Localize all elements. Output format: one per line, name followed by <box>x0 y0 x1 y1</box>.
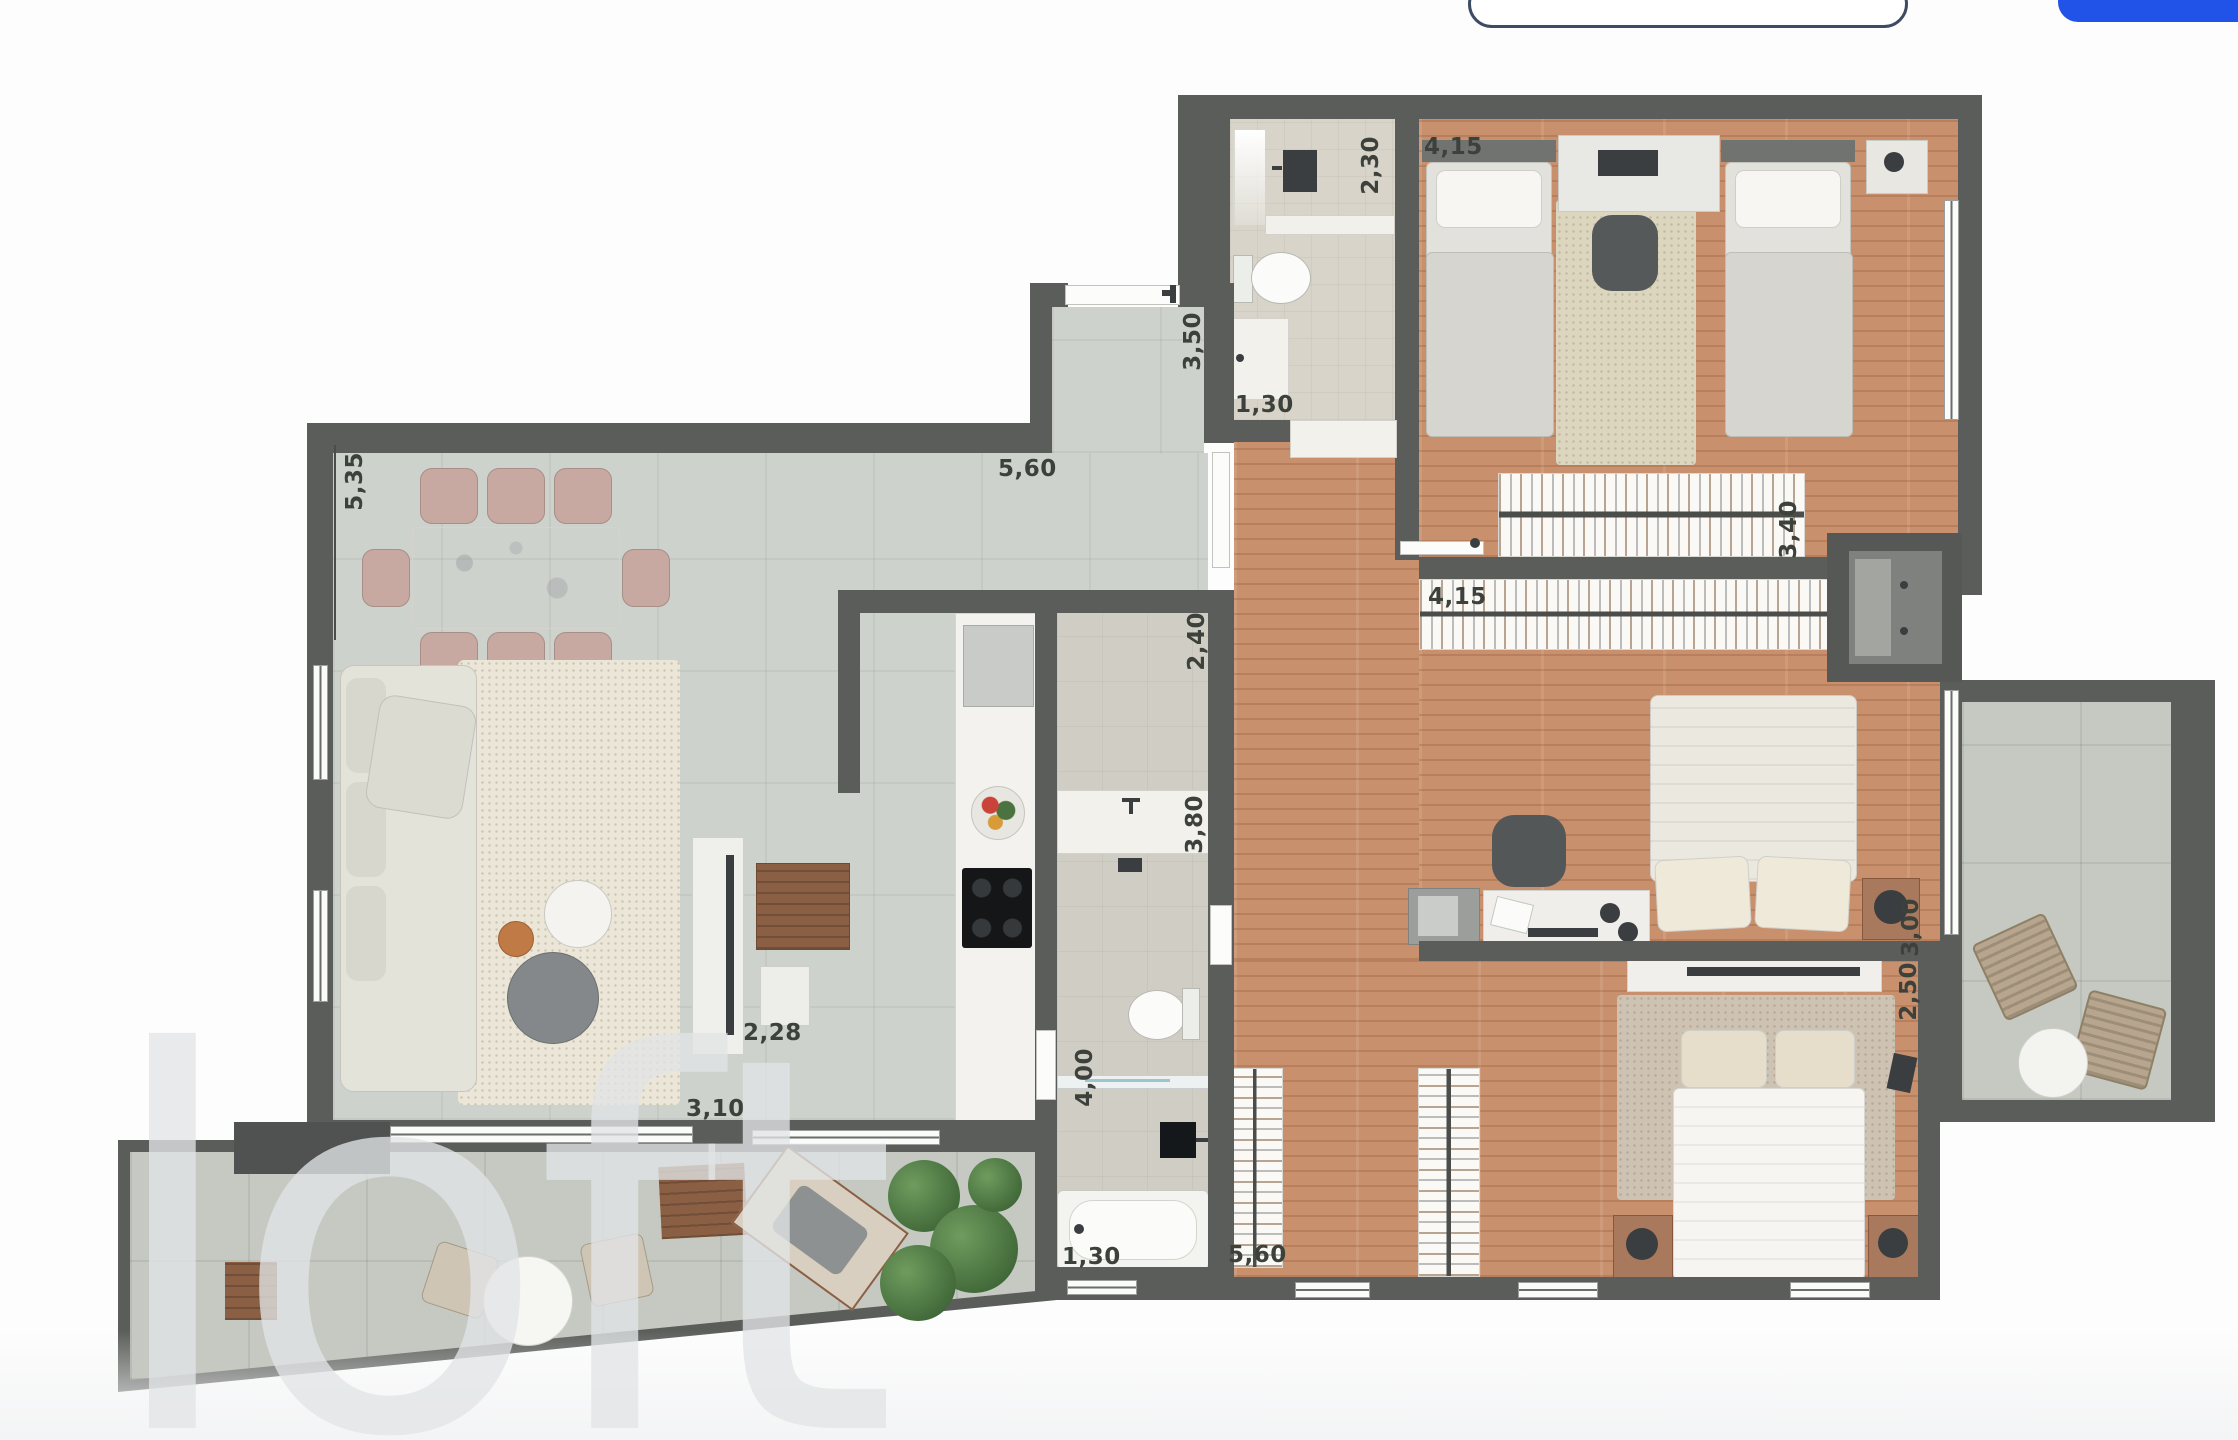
wall-master-bottom <box>1419 941 1940 961</box>
bath1-shower-tray <box>1290 420 1397 458</box>
cooktop <box>962 868 1032 948</box>
bedroom2-lamp <box>1878 1228 1908 1258</box>
bath2-door <box>1210 905 1232 965</box>
bath2-toilet-tank <box>1182 988 1200 1040</box>
master-shelf-inner <box>1418 896 1458 936</box>
wood-sideboard <box>756 863 850 950</box>
dim-label: 3,00 <box>1898 898 1924 957</box>
primary-pill-button[interactable] <box>2058 0 2238 22</box>
master-desk-item <box>1600 903 1620 923</box>
dim-label: 1,30 <box>1235 392 1294 418</box>
master-chair <box>1492 815 1566 887</box>
kids-door-knob <box>1470 538 1480 548</box>
bath1-toilet-tank <box>1233 255 1253 303</box>
dining-chair <box>622 549 670 607</box>
storage-room-door <box>1855 559 1891 656</box>
kids-laptop <box>1598 150 1658 176</box>
twin-bed-duvet <box>1725 252 1853 437</box>
wall-balcony-bottom <box>1940 1100 2215 1122</box>
bath1-faucet <box>1272 166 1282 170</box>
dim-label: 4,15 <box>1428 584 1487 610</box>
bath1-shower-glass <box>1233 130 1265 225</box>
bath2-shelf <box>1160 1122 1196 1158</box>
kitchen-terrace-door <box>1036 1030 1056 1100</box>
bath2-toilet-bowl <box>1128 990 1186 1040</box>
kids-nightstand-lamp <box>1884 152 1904 172</box>
bath2-window <box>1067 1280 1137 1295</box>
master-pillow <box>1654 856 1752 933</box>
corridor-floor <box>1234 442 1419 960</box>
wall-top-exterior <box>1178 95 1982 119</box>
master-desk-item <box>1618 922 1638 942</box>
bedroom2-lamp <box>1626 1228 1658 1260</box>
balcony-table <box>2018 1028 2088 1098</box>
kids-window <box>1944 200 1959 420</box>
twin-bed-headboard <box>1721 140 1855 162</box>
twin-bed-duvet <box>1426 252 1554 437</box>
wall-bath1-outer-left <box>1178 95 1230 290</box>
wall-kitchen-top <box>838 590 1234 613</box>
dim-label: 5,60 <box>998 456 1057 482</box>
fruit-bowl <box>971 786 1025 840</box>
dim-label: 3,50 <box>1180 312 1206 371</box>
bedroom2-tv <box>1687 967 1860 976</box>
kitchen-sink <box>963 625 1034 707</box>
dim-label: 4,15 <box>1424 134 1483 160</box>
dim-label: 1,30 <box>1062 1244 1121 1270</box>
bedroom2-closet-right <box>1418 1068 1480 1277</box>
dim-label: 2,50 <box>1896 962 1922 1021</box>
wall-entry-top-right <box>1178 283 1206 307</box>
dim-label: 5,60 <box>1228 1242 1287 1268</box>
master-bed-duvet-texture <box>1650 695 1855 880</box>
dining-chair <box>362 549 410 607</box>
bedroom2-window-2 <box>1518 1282 1598 1298</box>
dining-chair <box>487 468 545 524</box>
bathroom2-floor <box>1057 613 1208 1267</box>
dim-label: 2,40 <box>1184 612 1210 671</box>
bedroom2-bed <box>1673 1088 1865 1280</box>
dim-label: 3,80 <box>1182 795 1208 854</box>
twin-bed-pillow <box>1735 170 1841 228</box>
bath1-toilet-bowl <box>1251 252 1311 304</box>
bedroom2-pillow <box>1681 1030 1767 1088</box>
wall-bath1-kids <box>1395 95 1419 560</box>
twin-bed-pillow <box>1436 170 1542 228</box>
master-pillow <box>1754 856 1852 933</box>
wall-living-top <box>307 423 1052 453</box>
dining-table <box>412 527 620 629</box>
dimension-line <box>334 445 336 640</box>
bath2-faucet-stem <box>1129 798 1133 814</box>
living-window-1 <box>313 665 328 780</box>
dim-label: 4,00 <box>1072 1048 1098 1107</box>
entry-door-handle <box>1170 285 1176 303</box>
dim-label: 3,40 <box>1776 500 1802 559</box>
plant <box>968 1158 1022 1212</box>
coffee-table-marble <box>544 880 612 948</box>
dim-label: 5,35 <box>342 452 368 511</box>
kids-desk-chair <box>1592 215 1658 291</box>
bath2-shower-head <box>1118 858 1142 872</box>
storage-hinge-dot <box>1900 627 1908 635</box>
bathtub-faucet <box>1074 1224 1084 1234</box>
bedroom2-closet-left <box>1227 1068 1283 1268</box>
bath1-cabinet <box>1283 150 1317 192</box>
wall-kitchen-stub <box>838 613 860 793</box>
wall-bath1-left <box>1204 283 1234 443</box>
bedroom2-pillow <box>1775 1030 1855 1088</box>
plant <box>880 1245 956 1321</box>
bath1-vanity <box>1265 215 1395 235</box>
secondary-pill-button[interactable] <box>1468 0 1908 28</box>
kids-closet <box>1498 473 1805 557</box>
corridor-door <box>1212 452 1230 568</box>
master-desk-keyboard <box>1528 928 1598 937</box>
wall-right-upper <box>1958 95 1982 595</box>
dining-chair <box>420 468 478 524</box>
storage-hinge-dot <box>1900 581 1908 589</box>
loft-watermark: loft <box>100 988 884 1440</box>
bath1-sink-faucet <box>1236 354 1244 362</box>
bedroom2-tv-console <box>1627 960 1882 992</box>
dining-chair <box>554 468 612 524</box>
wall-bath2-left <box>1035 613 1057 1267</box>
dim-label: 2,30 <box>1358 136 1384 195</box>
bedroom2-window-1 <box>1295 1282 1370 1298</box>
floorplan-page: 5,35 5,60 2,30 4,15 3,50 1,30 3,40 4,15 … <box>0 0 2238 1440</box>
bath2-shelf-arm <box>1196 1138 1208 1142</box>
sofa-corner-pillow <box>364 693 479 821</box>
master-window <box>1944 690 1959 935</box>
bedroom2-window-3 <box>1790 1282 1870 1298</box>
